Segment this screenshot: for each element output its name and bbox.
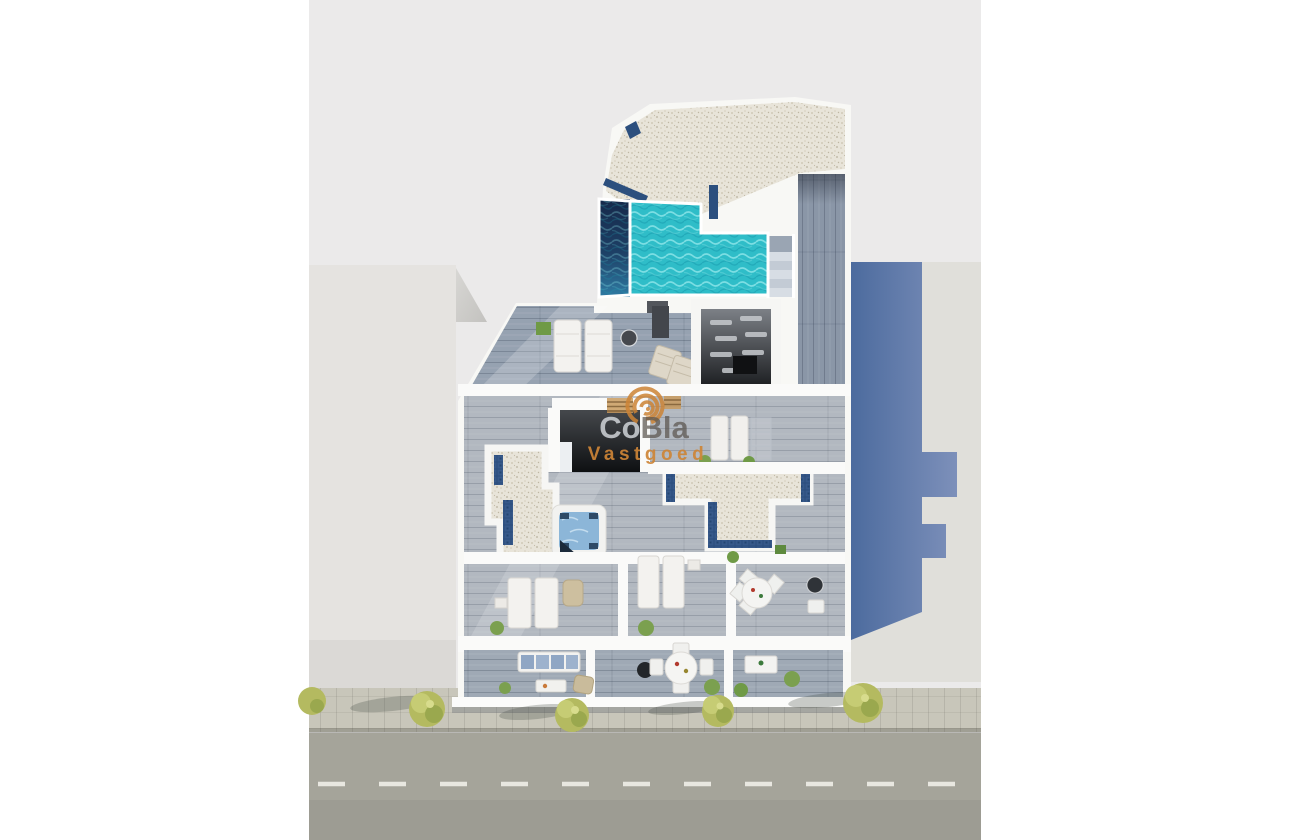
balcony-slab (458, 636, 851, 652)
floorplan-svg: CoBla Vastgoed (0, 0, 1290, 840)
wicker-chair (563, 580, 583, 606)
solar-tile-strip (709, 185, 718, 219)
plant (734, 683, 748, 697)
privacy-panel (652, 306, 669, 338)
side-table (495, 598, 507, 608)
plant (784, 671, 800, 687)
sun-lounger (535, 578, 558, 628)
shelf-rack (751, 418, 771, 460)
sun-lounger (711, 416, 728, 460)
planter-box (775, 545, 786, 554)
sun-lounger (554, 320, 581, 372)
tree (298, 687, 326, 715)
sun-lounger (638, 556, 659, 608)
side-table (688, 560, 700, 570)
brand-co: Co (599, 410, 640, 445)
balcony-divider (724, 648, 733, 700)
interior-wall (618, 564, 628, 638)
sun-lounger (508, 578, 531, 628)
planter-box (536, 322, 551, 335)
sun-lounger (663, 556, 684, 608)
plant (704, 679, 720, 695)
architectural-render: CoBla Vastgoed (0, 0, 1290, 840)
tree (702, 695, 734, 727)
sun-lounger (585, 320, 612, 372)
tree (843, 683, 883, 723)
brand-bla: Bla (641, 410, 690, 445)
plant (499, 682, 511, 694)
watermark-tagline: Vastgoed (588, 444, 708, 465)
round-dining-table (665, 652, 697, 684)
tree (555, 698, 589, 732)
plant (490, 621, 504, 635)
right-neighbor-building (851, 262, 981, 682)
pergola-dark-box (733, 356, 757, 374)
watermark-right-bars (664, 396, 681, 409)
plant (638, 620, 654, 636)
round-dining-table (742, 578, 772, 608)
chair (808, 600, 824, 613)
coffee-table (536, 680, 566, 692)
chair (650, 659, 663, 675)
wicker-chair (573, 675, 595, 695)
interior-wall (726, 564, 736, 638)
tree (409, 691, 445, 727)
skylight-gravel-patch (488, 448, 556, 556)
watermark-brand-text: CoBla (599, 410, 689, 445)
curb (309, 728, 981, 733)
plant (727, 551, 739, 563)
sun-lounger (731, 416, 748, 460)
pool-stairs (767, 234, 796, 298)
jacuzzi (552, 505, 606, 557)
chair (700, 659, 713, 675)
pergola-room (691, 299, 781, 394)
